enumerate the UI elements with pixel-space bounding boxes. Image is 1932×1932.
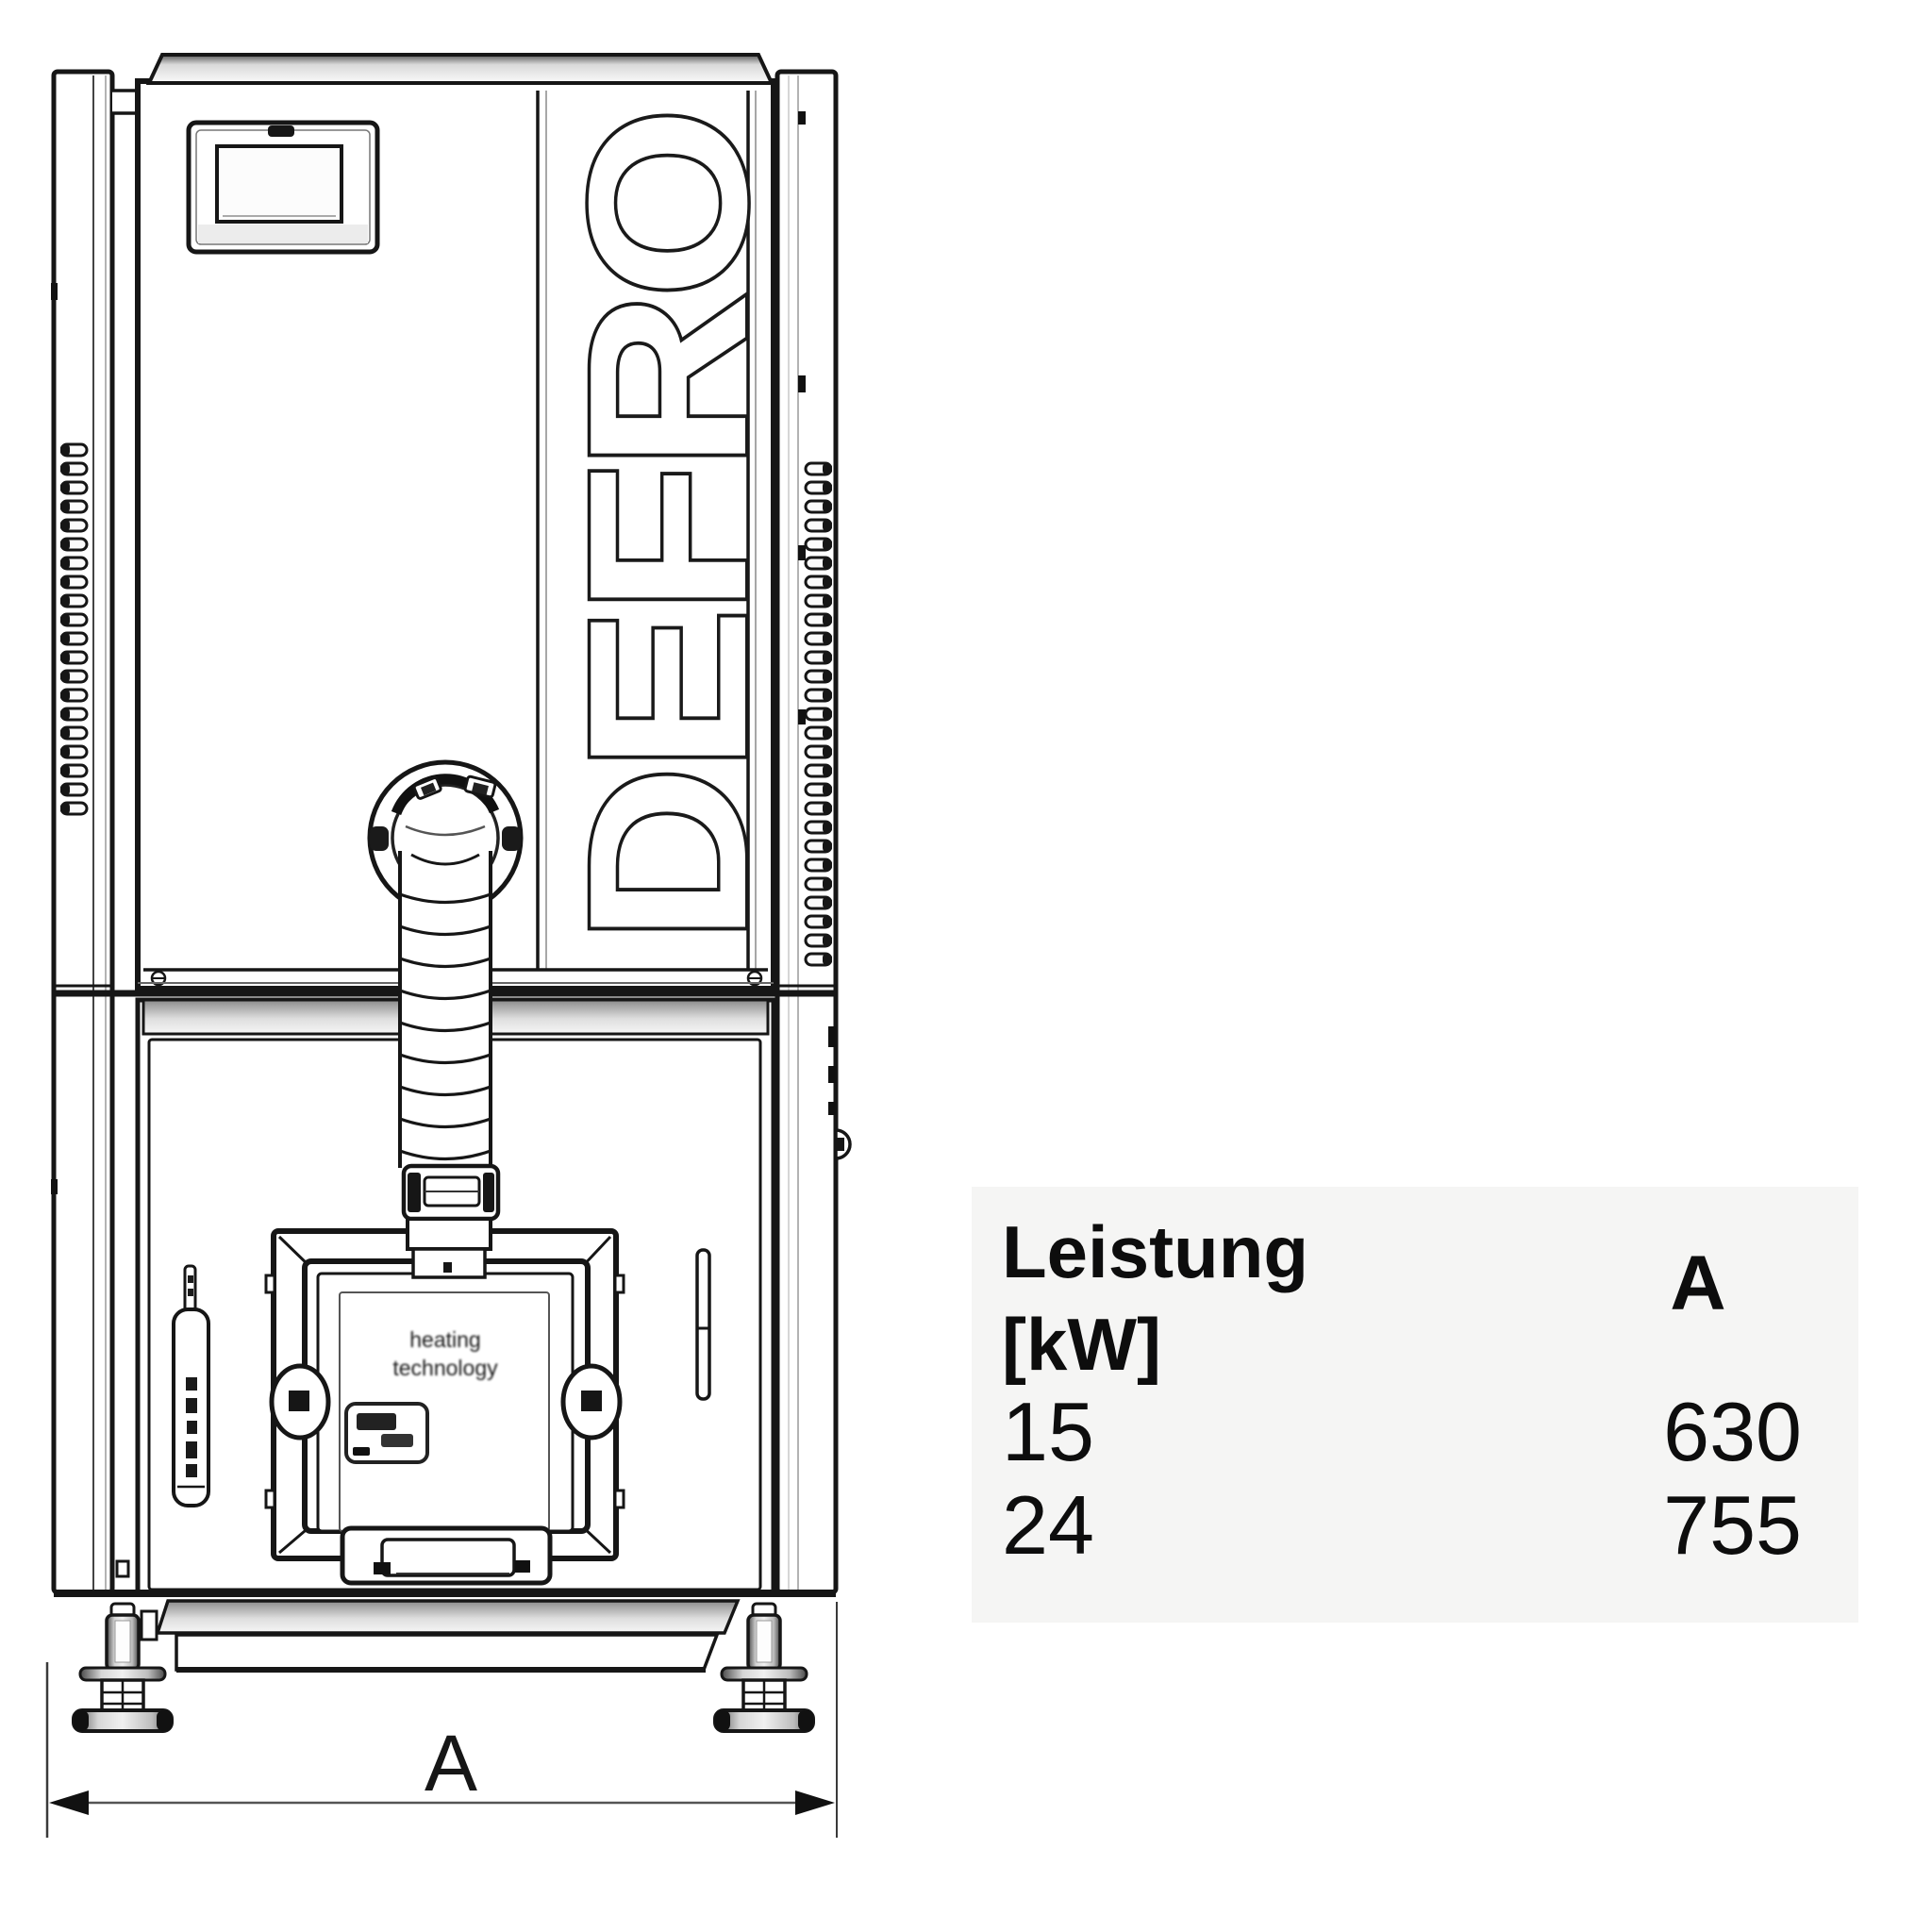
hinge-left xyxy=(272,1366,328,1438)
table-row-power: 15 xyxy=(1002,1391,1094,1474)
burner-plate xyxy=(346,1404,427,1462)
flange-bolt-right xyxy=(502,826,521,851)
burner-door-label-line1: heating xyxy=(409,1327,480,1352)
table-header-dimension-a: A xyxy=(1594,1245,1802,1323)
boiler-front-diagram: A xyxy=(0,0,906,1932)
top-cover-bar xyxy=(149,55,772,83)
right-vent-grille xyxy=(804,460,832,970)
controller-display xyxy=(189,123,377,252)
table-row-dimension-a: 630 xyxy=(1594,1391,1802,1474)
table-row-power: 24 xyxy=(1002,1484,1094,1567)
flexible-flue-hose xyxy=(400,826,498,1277)
burner-door-label-line2: technology xyxy=(392,1356,498,1380)
door-handle-bottom xyxy=(342,1528,550,1583)
burner-door: heating technology xyxy=(266,1231,624,1583)
dim-arrow-right-icon xyxy=(795,1790,835,1815)
dim-arrow-left-icon xyxy=(49,1790,89,1815)
dimension-table: Leistung [kW] A 15 630 24 755 xyxy=(972,1187,1858,1623)
flange-bolt-left xyxy=(370,826,389,851)
left-vent-grille xyxy=(60,441,89,819)
dimension-A-label: A xyxy=(425,1719,477,1807)
table-header-power-line2: [kW] xyxy=(1002,1307,1161,1381)
door-slot-handle xyxy=(697,1250,709,1399)
hinge-right xyxy=(563,1366,620,1438)
table-header-power-line1: Leistung xyxy=(1002,1215,1308,1289)
left-side-panel xyxy=(51,72,139,1592)
base-rail-lower xyxy=(176,1635,717,1670)
boiler-dimension-sheet: A xyxy=(0,0,1932,1932)
defro-logo: DEFRO xyxy=(543,113,793,943)
display-screen xyxy=(217,146,341,222)
base-rail-upper xyxy=(158,1601,738,1633)
display-notch xyxy=(268,125,294,137)
table-row-dimension-a: 755 xyxy=(1594,1484,1802,1567)
hose-neck xyxy=(408,1219,491,1277)
hose-clamp-box xyxy=(404,1166,498,1219)
